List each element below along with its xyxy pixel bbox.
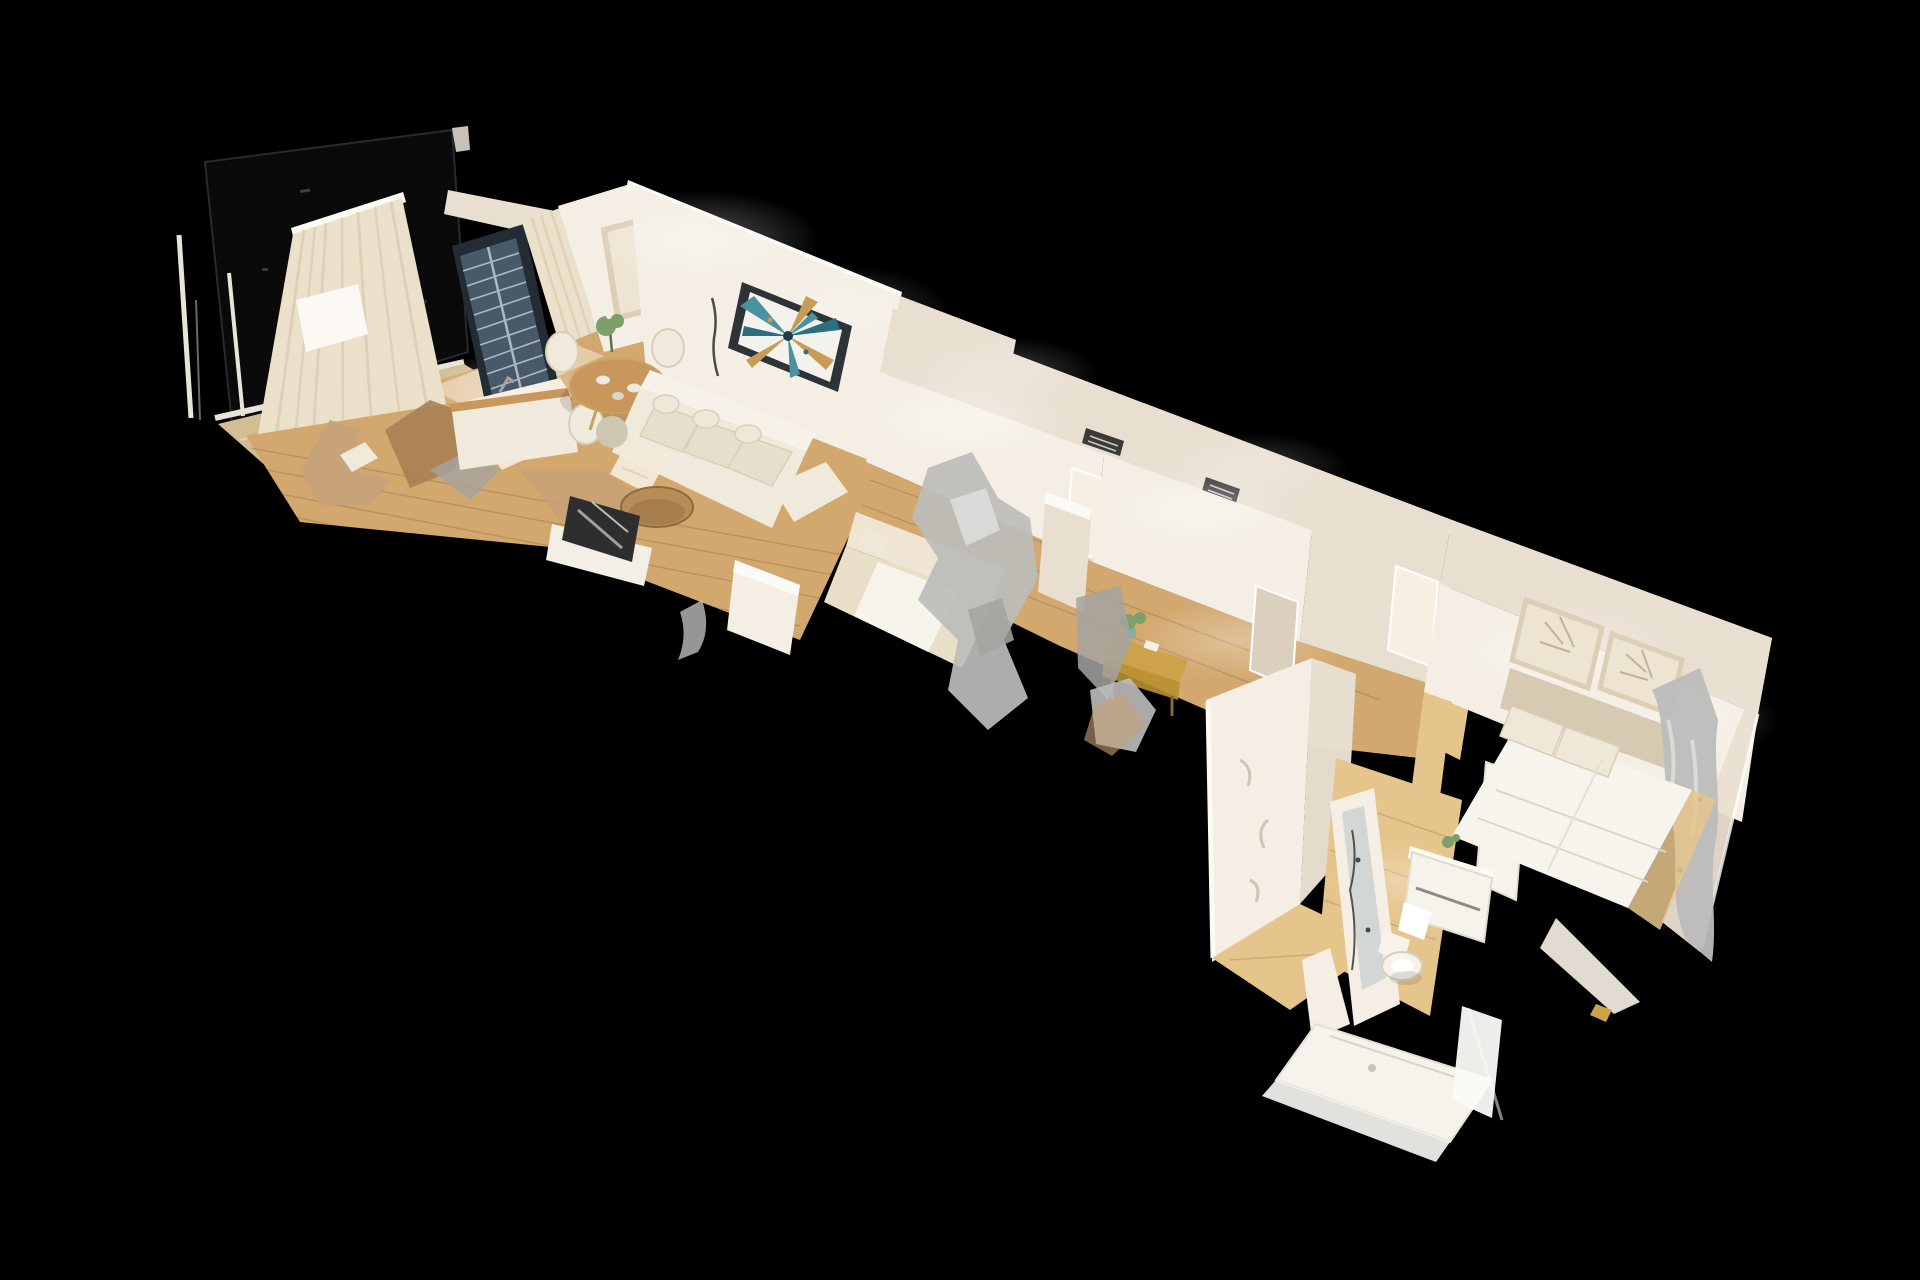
round-bolster-pillow bbox=[596, 416, 628, 448]
dining-chair bbox=[652, 329, 684, 367]
sofa-pillow bbox=[653, 395, 679, 413]
place-setting bbox=[612, 392, 624, 400]
sofa-pillow bbox=[693, 410, 719, 428]
dollhouse-3d-model bbox=[0, 0, 1920, 1280]
wall-light-glow bbox=[855, 375, 1075, 465]
dining-chair bbox=[546, 332, 578, 372]
dollhouse-viewport[interactable] bbox=[0, 0, 1920, 1280]
wall-light-glow bbox=[1100, 470, 1300, 550]
shower-drain bbox=[1368, 1064, 1376, 1072]
place-setting bbox=[596, 376, 610, 385]
sofa-pillow bbox=[735, 425, 761, 443]
